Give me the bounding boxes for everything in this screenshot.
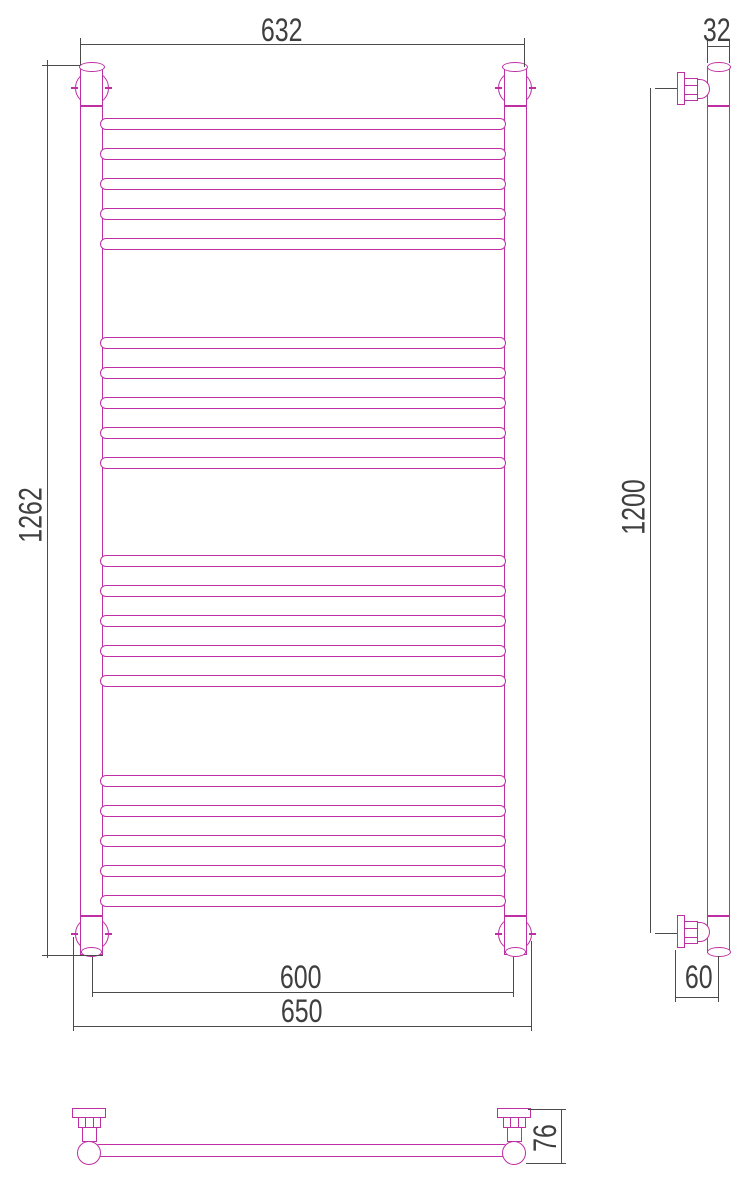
ext-line (531, 941, 532, 1031)
bottom-rail-bar (95, 1144, 508, 1158)
center-tick (71, 933, 78, 935)
ext-line (73, 937, 74, 1031)
rung (100, 427, 506, 439)
bracket-flange (677, 72, 685, 105)
rung (100, 865, 506, 877)
collar-joint-line (504, 105, 527, 107)
dim-label-600: 600 (251, 961, 351, 993)
rung (100, 367, 506, 379)
center-tick (105, 87, 112, 89)
hex-facet-line (684, 85, 698, 86)
rung (100, 397, 506, 409)
dim-label-76: 76 (495, 1088, 595, 1182)
ext-line (92, 957, 93, 997)
collar-joint-line (80, 915, 103, 917)
rung (100, 805, 506, 817)
center-tick (495, 87, 502, 89)
collar-joint-line (80, 105, 103, 107)
hex-facet-line (93, 1117, 94, 1128)
dim-line-60 (675, 997, 719, 998)
tube-bottom-cap (505, 947, 526, 957)
tube-top-cap (79, 62, 105, 72)
rung (100, 178, 506, 190)
rung (100, 337, 506, 349)
ext-line (524, 38, 525, 67)
dim-label-1262: 1262 (0, 465, 81, 565)
rung (100, 895, 506, 907)
bracket-flange (677, 915, 685, 948)
hex-facet-line (684, 94, 698, 95)
hex-facet-line (684, 928, 698, 929)
side-tube (707, 66, 730, 953)
hex-facet-line (85, 1117, 86, 1128)
dim-label-60: 60 (649, 961, 749, 993)
rung (100, 585, 506, 597)
rung (100, 238, 506, 250)
ext-line (655, 933, 677, 934)
bracket-hex-nut (684, 78, 698, 101)
rung (100, 555, 506, 567)
rung (100, 675, 506, 687)
bracket-flange-plate (72, 1108, 106, 1118)
dim-label-32: 32 (667, 14, 750, 46)
tube-top-cap (707, 62, 731, 72)
dim-label-632: 632 (232, 14, 332, 46)
rung (100, 645, 506, 657)
dim-label-650: 650 (252, 995, 352, 1027)
hex-facet-line (684, 937, 698, 938)
ext-line (655, 88, 677, 89)
collar-joint-line (504, 915, 527, 917)
rung (100, 457, 506, 469)
right-post-tube (504, 66, 527, 955)
collar-joint-line (707, 105, 730, 107)
left-post-tube (80, 66, 103, 955)
center-tick (71, 87, 78, 89)
ext-line (80, 38, 81, 65)
rung (100, 835, 506, 847)
rung (100, 148, 506, 160)
center-tick (495, 933, 502, 935)
bracket-stem (82, 1127, 97, 1142)
rung (100, 208, 506, 220)
collar-joint-line (707, 915, 730, 917)
tube-bottom-cap (707, 947, 731, 957)
tube-section-circle (77, 1141, 101, 1165)
technical-drawing-canvas: 632 1262 600 650 32 12 (0, 0, 750, 1182)
rung (100, 775, 506, 787)
rung (100, 615, 506, 627)
center-tick (105, 933, 112, 935)
ext-line (513, 957, 514, 997)
center-tick (529, 933, 536, 935)
bracket-hex-nut (78, 1117, 101, 1128)
rung (100, 118, 506, 130)
dim-label-1200: 1200 (584, 457, 684, 557)
center-tick (529, 87, 536, 89)
ext-line (42, 65, 80, 66)
bracket-hex-nut (684, 921, 698, 944)
